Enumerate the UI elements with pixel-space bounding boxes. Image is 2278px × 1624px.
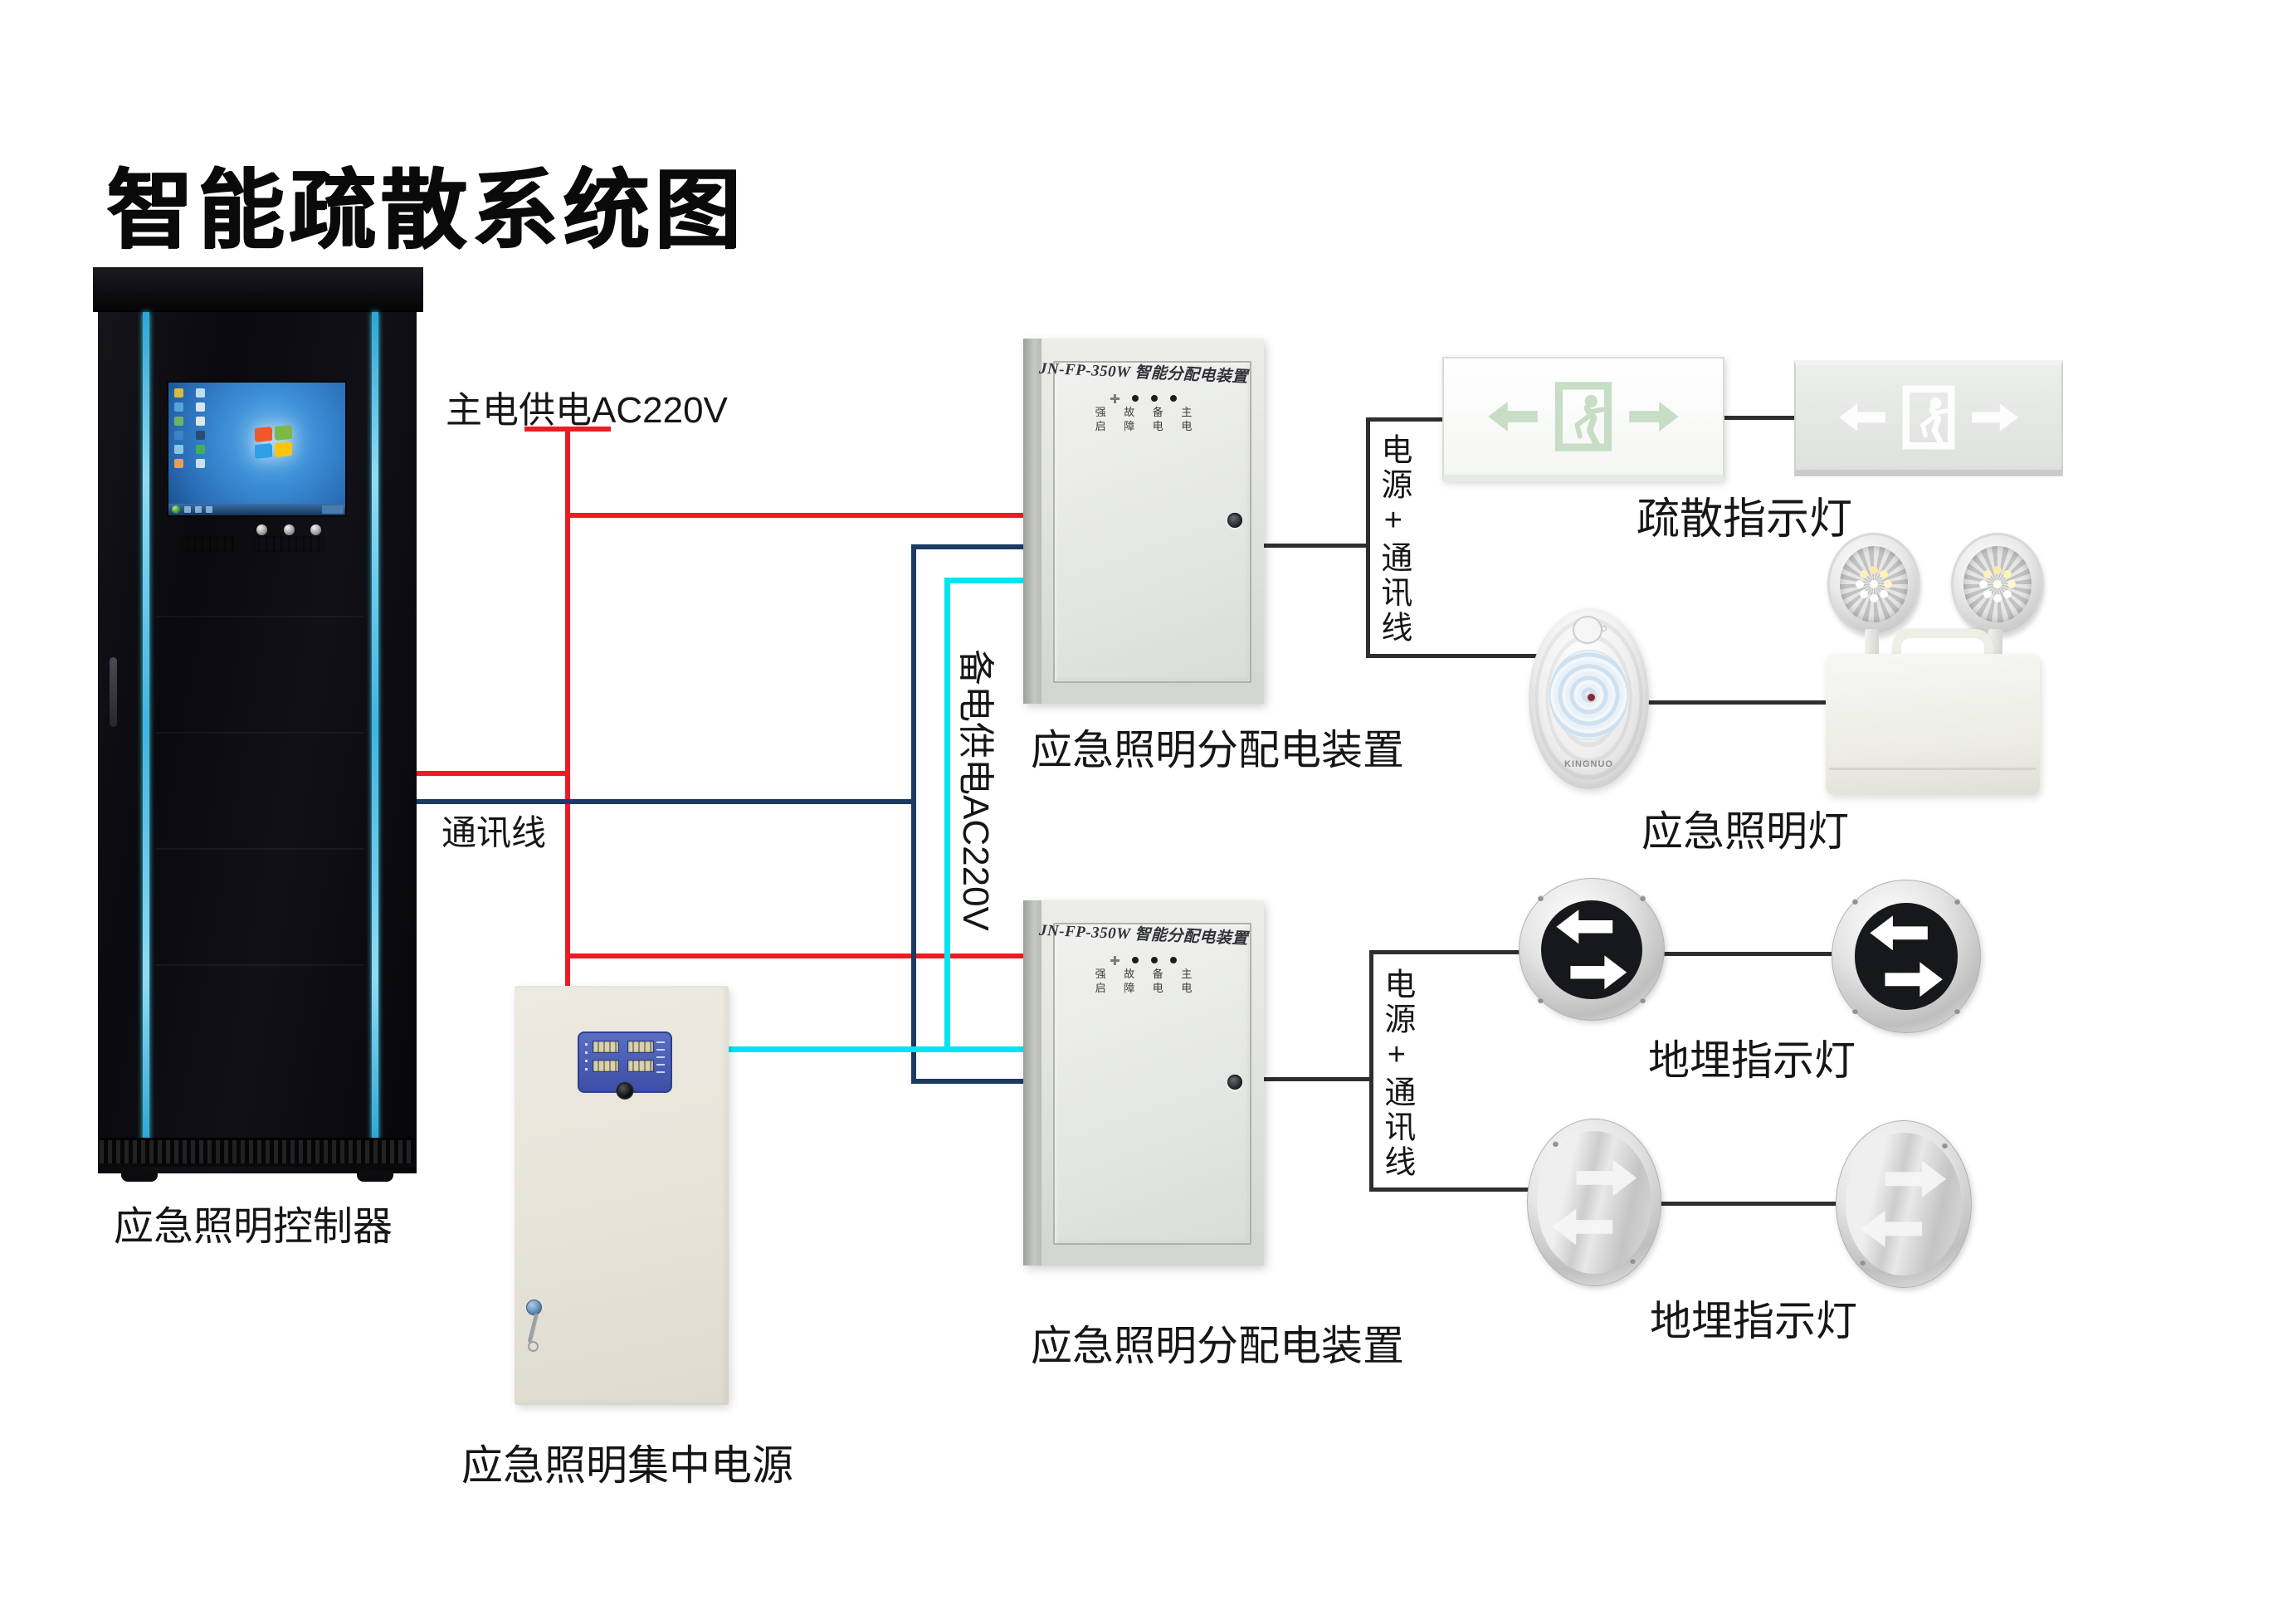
taskbar-icon (206, 506, 212, 513)
panel-knob (256, 524, 267, 535)
arrow-left-icon (1487, 398, 1539, 435)
arrow-left-icon (1869, 912, 1929, 954)
controller-label: 应急照明控制器 (114, 1193, 393, 1251)
arrow-right-icon (1884, 958, 1944, 1001)
indicator-labels-row1: 强 故 备 主 (1088, 968, 1200, 982)
panel-knob (617, 1082, 634, 1100)
key-panel (181, 536, 234, 552)
arrow-right-icon (1884, 1157, 1948, 1202)
desktop-icon (174, 431, 183, 440)
diagram-canvas: 智能疏散系统图 主电供电AC220V 通讯线 备电供电AC220V 电源+通讯线… (0, 0, 2278, 1624)
bracket2-to-groundlight-row1 (1369, 950, 1520, 954)
ground-light-row1-label: 地埋指示灯 (1648, 1027, 1856, 1087)
arrow-right-icon (1628, 398, 1680, 435)
wire-groundlight1a-to-1b (1661, 952, 1832, 956)
wire-comm-trunk (911, 544, 916, 1084)
desktop-icon (196, 388, 205, 397)
led-display (593, 1041, 619, 1053)
panel-displays (593, 1041, 657, 1077)
taskbar-icon (195, 506, 202, 513)
cabinet-foot (357, 1170, 393, 1182)
wire-backup-trunk (944, 578, 950, 1052)
lamp-brand-text: KINGNUO (1529, 759, 1649, 769)
light-face (1855, 903, 1958, 1009)
screw-dot (1640, 895, 1646, 901)
led-cluster (1870, 580, 1878, 588)
wire-distbox2-out (1264, 1077, 1373, 1081)
distribution-box-2: JN-FP-350W 智能分配电装置 强 故 备 主 启 障 电 电 (1023, 900, 1264, 1266)
led-cluster (1993, 580, 2002, 588)
desktop-icon (174, 459, 183, 468)
distbox1-label: 应急照明分配电装置 (1031, 717, 1404, 777)
cabinet-panel-line (156, 616, 363, 617)
desktop-icon (174, 417, 183, 426)
ground-light-1b (1832, 880, 1981, 1033)
arrow-right-icon (1575, 1156, 1638, 1200)
cabinet-panel-line (156, 732, 363, 734)
panel-led-column (656, 1041, 665, 1078)
light-face (1541, 900, 1642, 999)
arrow-left-icon (1838, 400, 1886, 435)
wire-comm-to-distbox2 (916, 1079, 1024, 1084)
arrow-left-icon (1860, 1207, 1924, 1251)
arrow-left-icon (1555, 906, 1614, 947)
main-power-label: 主电供电AC220V (446, 380, 728, 433)
central-power-cabinet (515, 986, 729, 1405)
controller-cabinet (98, 267, 417, 1173)
wire-main-power-to-distbox1 (568, 513, 1024, 518)
lamp-head-right (1951, 533, 2044, 636)
wire-backup-to-distbox1 (950, 578, 1024, 583)
desktop-icon (196, 431, 205, 440)
desktop-icon (196, 417, 205, 426)
wire-dome-to-twinlight (1647, 700, 1828, 705)
desktop-icon (174, 445, 183, 454)
taskbar-icon (184, 506, 191, 513)
desktop-icon (196, 445, 205, 454)
bracket1-to-dome-lamp (1366, 654, 1540, 658)
taskbar (168, 504, 345, 515)
panel-knob (310, 524, 321, 535)
power-comm-label-1: 电源+通讯线 (1376, 433, 1409, 646)
windows-logo (255, 426, 293, 459)
cabinet-foot (121, 1170, 158, 1182)
indicator-led-row (1110, 393, 1177, 403)
exit-sign-lit (1442, 357, 1724, 481)
central-power-label: 应急照明集中电源 (461, 1432, 793, 1492)
cabinet-top-cap (93, 267, 423, 312)
indicator-labels-row2: 启 障 电 电 (1088, 982, 1200, 996)
screw-dot (1852, 899, 1858, 905)
twin-head-emergency-light (1826, 531, 2041, 797)
lamp-sensor-dot (1586, 692, 1597, 703)
arrow-right-icon (1569, 952, 1628, 992)
desktop-icon (196, 459, 205, 468)
bracket2-vertical (1369, 950, 1373, 1192)
cabinet-accent-strip-right (372, 312, 378, 1144)
running-man-exit-icon (1900, 381, 1958, 454)
key-panel (252, 536, 325, 552)
windows-logo-pane (255, 443, 272, 459)
door-keyhole (1227, 513, 1242, 528)
cross-icon (1110, 956, 1119, 965)
screw-dot (1553, 1141, 1559, 1147)
bracket1-to-exit-sign (1366, 417, 1444, 422)
ground-light-2b (1836, 1120, 1972, 1288)
taskbar-clock (322, 505, 344, 514)
comm-label: 通讯线 (441, 805, 546, 856)
door-key (528, 1313, 539, 1343)
page-title: 智能疏散系统图 (106, 139, 745, 265)
cabinet-accent-strip-left (143, 312, 149, 1144)
desktop-icon (196, 402, 205, 412)
arrow-left-icon (1551, 1205, 1614, 1249)
dome-emergency-lamp: KINGNUO (1529, 608, 1649, 789)
start-orb-icon (172, 505, 180, 514)
light-face (1846, 1133, 1961, 1275)
wire-groundlight2a-to-2b (1660, 1202, 1836, 1206)
wire-comm-from-controller (412, 799, 916, 804)
lamp-head-left (1827, 533, 1920, 636)
windows-logo-pane (275, 441, 292, 457)
emergency-light-label: 应急照明灯 (1641, 798, 1849, 858)
desktop-icons (174, 388, 211, 488)
wire-main-power-to-controller (412, 771, 570, 776)
wire-main-power-to-distbox2 (568, 953, 1024, 958)
led-display (593, 1060, 619, 1072)
screw-dot (1640, 997, 1646, 1003)
wire-backup-to-distbox2 (727, 1046, 1024, 1052)
box-indicators: 强 故 备 主 启 障 电 电 (1023, 393, 1264, 434)
ground-light-row2-label: 地埋指示灯 (1650, 1288, 1857, 1348)
cabinet-door-handle (110, 657, 117, 727)
indicator-labels-row2: 启 障 电 电 (1088, 420, 1200, 434)
power-control-panel (578, 1031, 672, 1093)
door-keyhole (1227, 1075, 1242, 1090)
led-dot (1170, 395, 1177, 402)
battery-body (1826, 654, 2040, 795)
lamp-stalk (1865, 629, 1879, 657)
exit-sign-unlit (1794, 360, 2063, 476)
bracket1-vertical (1366, 417, 1370, 658)
panel-led-column (585, 1043, 588, 1076)
screw-dot (1942, 1143, 1948, 1149)
screw-dot (1852, 1008, 1858, 1014)
screw-dot (1860, 1260, 1866, 1266)
exit-sign-label: 疏散指示灯 (1637, 484, 1852, 546)
screw-dot (1630, 1258, 1636, 1264)
ground-light-2a (1527, 1119, 1661, 1286)
desktop-icon (174, 402, 183, 412)
windows-logo-pane (275, 425, 292, 441)
lamp-button (1573, 616, 1602, 644)
distbox2-label: 应急照明分配电装置 (1031, 1313, 1404, 1373)
led-display (627, 1060, 654, 1072)
light-face (1537, 1131, 1651, 1274)
led-dot (1151, 395, 1158, 402)
led-dot (1170, 957, 1177, 963)
wire-comm-to-distbox1 (916, 544, 1024, 549)
running-man-exit-icon (1552, 378, 1615, 455)
screw-dot (1538, 997, 1544, 1003)
led-dot (1151, 957, 1158, 963)
led-display (627, 1041, 654, 1053)
wire-main-power-trunk (565, 427, 570, 988)
door-key-bow (528, 1341, 539, 1352)
screw-dot (1954, 899, 1960, 905)
wire-exit-sign1-to-sign2 (1720, 416, 1795, 420)
power-comm-label-2: 电源+通讯线 (1379, 968, 1412, 1180)
box-indicators: 强 故 备 主 启 障 电 电 (1023, 955, 1264, 996)
indicator-labels-row1: 强 故 备 主 (1088, 406, 1200, 420)
cross-icon (1110, 394, 1119, 403)
cabinet-panel-line (156, 964, 363, 966)
cabinet-panel-line (156, 848, 363, 850)
cabinet-vent-base (100, 1138, 415, 1167)
led-dot (1132, 957, 1139, 963)
distribution-box-1: JN-FP-350W 智能分配电装置 强 故 备 主 启 障 电 电 (1023, 339, 1264, 704)
backup-power-label: 备电供电AC220V (953, 649, 1006, 931)
panel-knob (284, 524, 295, 535)
indicator-led-row (1110, 955, 1177, 965)
screw-dot (1954, 1008, 1960, 1014)
ground-light-1a (1519, 878, 1665, 1021)
windows-logo-pane (255, 427, 272, 442)
screw-dot (1538, 895, 1544, 901)
wire-distbox1-out (1264, 544, 1369, 548)
arrow-right-icon (1971, 400, 2019, 435)
desktop-icon (174, 388, 183, 397)
bracket2-to-groundlight-row2 (1369, 1188, 1529, 1192)
controller-monitor (167, 381, 347, 517)
led-dot (1132, 395, 1139, 402)
